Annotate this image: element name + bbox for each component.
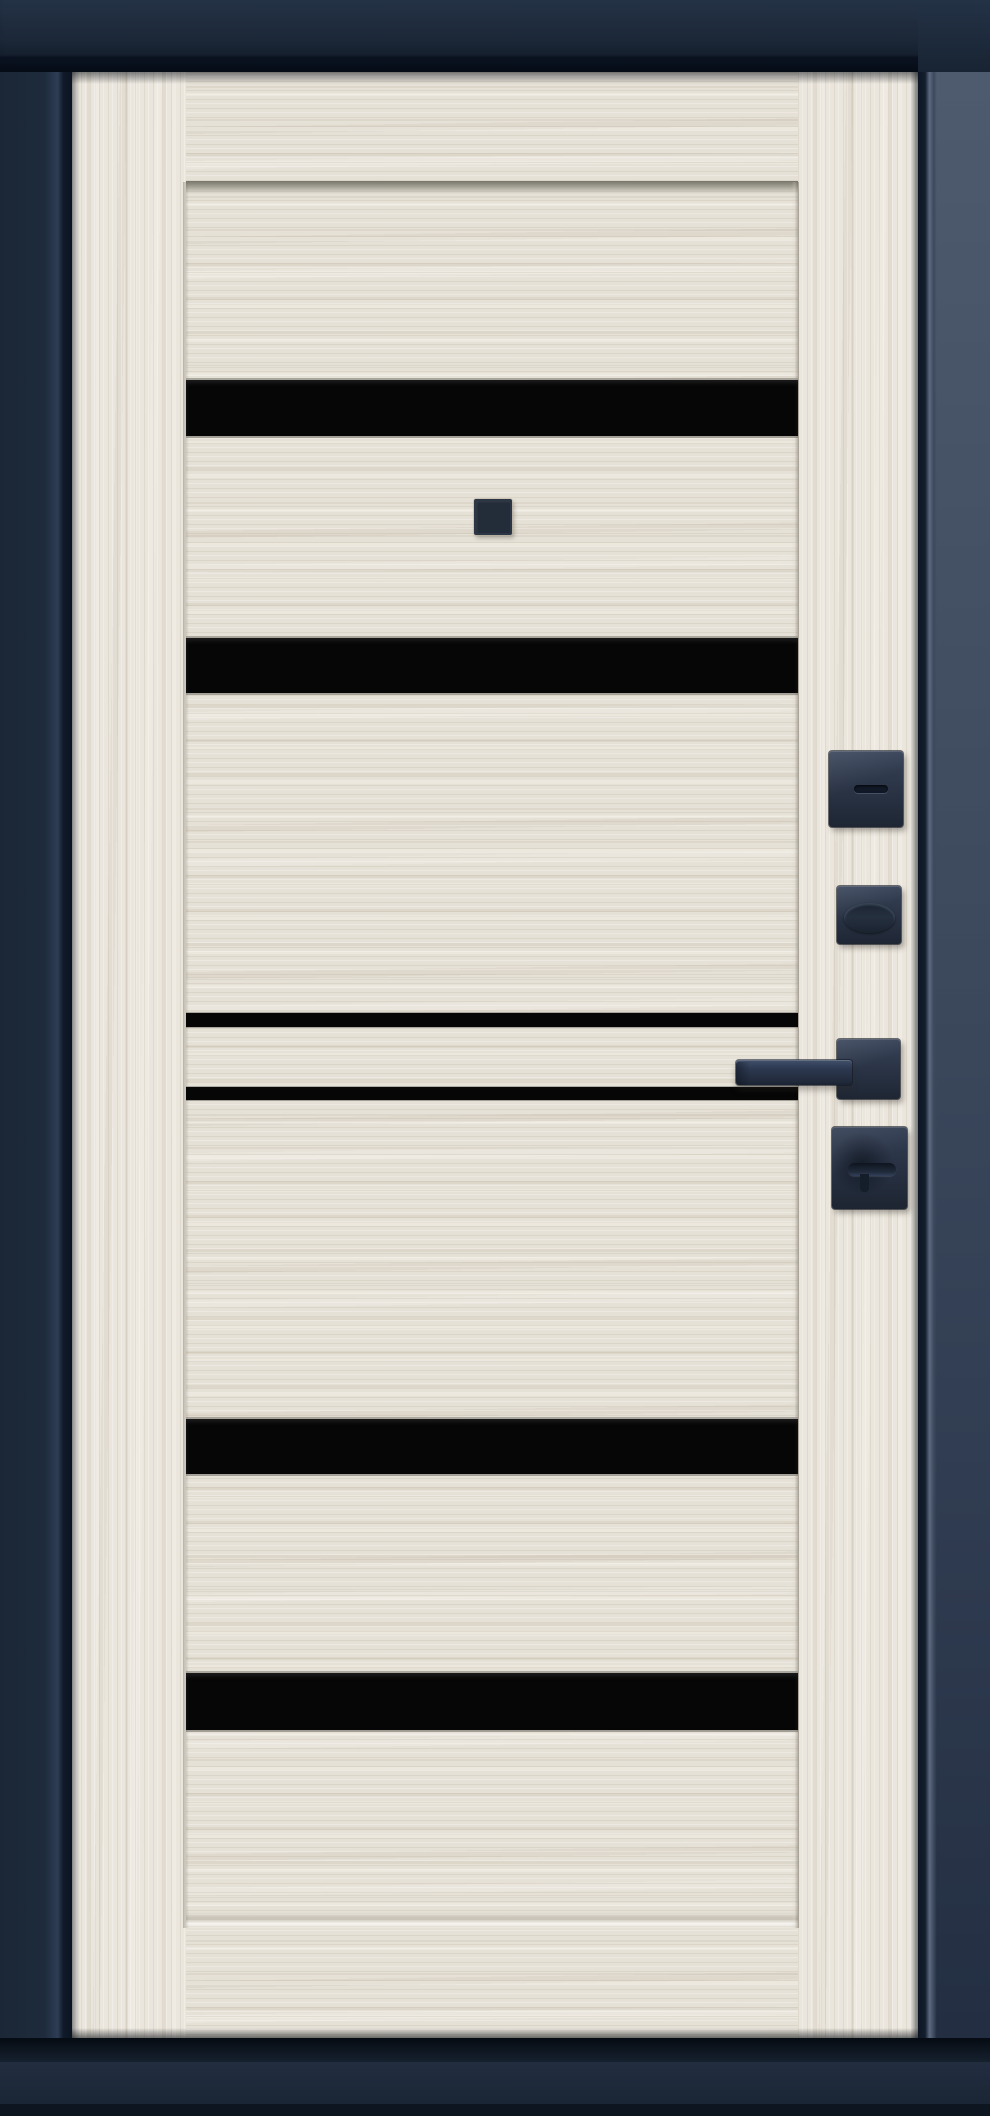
cylinder-escutcheon xyxy=(837,886,901,944)
thumbturn-stem xyxy=(860,1174,869,1192)
thumbturn-knob xyxy=(848,1163,896,1176)
peephole-square xyxy=(474,499,512,535)
panel-seam-right xyxy=(791,182,799,1928)
slab-shadow-bottom xyxy=(72,2028,918,2038)
lock-cylinder-cover xyxy=(844,903,895,933)
lever-handle xyxy=(736,1060,852,1085)
panel-bottom-bevel xyxy=(186,1912,798,1928)
glass-insert-4-narrow xyxy=(186,1087,798,1100)
glass-insert-3-narrow xyxy=(186,1013,798,1027)
panel-seam-left xyxy=(183,182,189,1928)
frame-sill-edge xyxy=(0,2104,990,2116)
frame-sill xyxy=(0,2062,990,2104)
frame-sill-shadow xyxy=(0,2038,990,2062)
frame-head xyxy=(0,0,990,72)
lever-handle-end xyxy=(736,1062,750,1085)
glass-insert-6 xyxy=(186,1673,798,1730)
frame-jamb-left xyxy=(0,72,72,2038)
deadbolt-escutcheon xyxy=(829,751,903,827)
slab-shadow-right xyxy=(910,72,918,2038)
door-rail-bottom xyxy=(186,1926,798,2038)
deadbolt-keyhole-slot xyxy=(854,785,888,793)
door-rail-top xyxy=(186,72,798,182)
frame-jamb-right xyxy=(918,72,990,2038)
glass-insert-1 xyxy=(186,380,798,436)
slab-shadow-left xyxy=(72,72,80,2038)
slab-shadow-top xyxy=(72,72,918,84)
door-stile-left xyxy=(72,72,186,2038)
thumbturn-escutcheon xyxy=(832,1127,907,1209)
door-center-panel xyxy=(186,182,798,1926)
panel-top-bevel xyxy=(186,181,798,194)
glass-insert-5 xyxy=(186,1419,798,1474)
door-photo xyxy=(0,0,990,2116)
glass-insert-2 xyxy=(186,638,798,693)
frame-corner-top-right xyxy=(918,0,990,72)
